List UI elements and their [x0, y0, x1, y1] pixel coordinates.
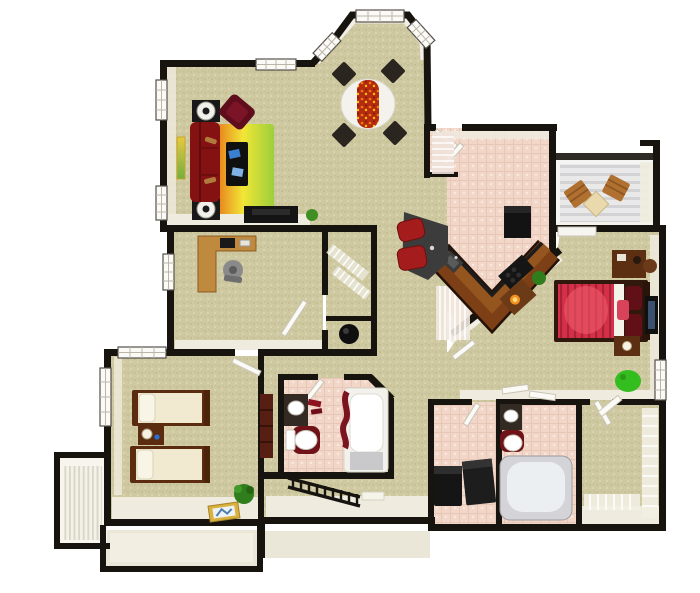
- bedroom-desk-chair: [643, 259, 657, 273]
- coffee-table: [226, 142, 248, 186]
- bedroom-desk-item: [633, 256, 641, 264]
- refrigerator-top: [504, 206, 531, 213]
- office-left-window: [163, 254, 174, 290]
- kitchen-plant: [532, 271, 546, 285]
- porch-lower-center-floor: [263, 531, 430, 558]
- wall-tv-screen: [648, 301, 655, 329]
- tub-fixture-end: [350, 452, 383, 470]
- living-plant: [306, 209, 318, 221]
- red-sofa: [190, 122, 220, 202]
- living-left-window-2: [156, 186, 167, 220]
- end-table-north-disc: [203, 108, 210, 115]
- pantry-shelves: [432, 132, 454, 174]
- bedroom-west-face: [114, 357, 122, 495]
- bean-bag-spot: [620, 374, 626, 380]
- stair-treads: [64, 466, 102, 540]
- balcony-slider-door: [558, 227, 596, 236]
- master-right-window: [655, 360, 666, 400]
- water-heater-highlight: [343, 328, 349, 334]
- living-top-window: [256, 59, 296, 70]
- hall-sink: [288, 401, 304, 415]
- bedroom-desk-paper: [617, 254, 626, 261]
- master-south-face: [460, 390, 666, 400]
- twin-bed-2: [130, 446, 210, 483]
- hall-toilet: [295, 431, 317, 450]
- dining-table-runner: [357, 80, 379, 128]
- master-throw-pillow: [617, 300, 629, 320]
- bathtub: [350, 394, 383, 452]
- porch-lower-left-inner: [110, 533, 253, 562]
- tv-screen: [252, 209, 290, 215]
- bed-sheen: [564, 286, 608, 334]
- bay-window-top: [356, 10, 404, 22]
- dryer: [462, 459, 496, 506]
- living-west-face: [167, 65, 176, 225]
- floor-plant: [234, 484, 254, 504]
- end-table-south-disc: [203, 206, 210, 213]
- stair-threshold: [362, 492, 384, 500]
- office-south-face: [175, 340, 322, 350]
- twin-bedroom-left-window: [100, 368, 111, 426]
- maroon-shower-curtain: [343, 392, 347, 448]
- water-heater: [339, 324, 359, 344]
- floor-picture-frame: [208, 502, 240, 522]
- green-bean-bag: [615, 370, 641, 392]
- washer-top: [434, 466, 462, 474]
- computer-monitor: [220, 238, 235, 248]
- master-toilet: [504, 435, 522, 451]
- wall-art: [177, 137, 185, 179]
- living-left-window-1: [156, 80, 167, 120]
- balcony-east-face: [640, 162, 653, 224]
- twin-bed-1: [132, 390, 210, 426]
- floor-plan-stage: [0, 0, 700, 593]
- bar-stool-2: [396, 245, 427, 272]
- garden-tub-basin: [507, 462, 565, 512]
- twin-nightstand: [138, 426, 164, 445]
- toilet-tank: [286, 430, 295, 450]
- master-sink: [504, 410, 518, 422]
- floor-plan-rendering: [0, 0, 700, 593]
- desk-papers: [240, 240, 250, 246]
- twin-bedroom-top-window: [118, 347, 166, 358]
- bar-faucet-dot: [430, 246, 434, 250]
- office-chair: [223, 260, 243, 283]
- master-lamp: [623, 342, 632, 351]
